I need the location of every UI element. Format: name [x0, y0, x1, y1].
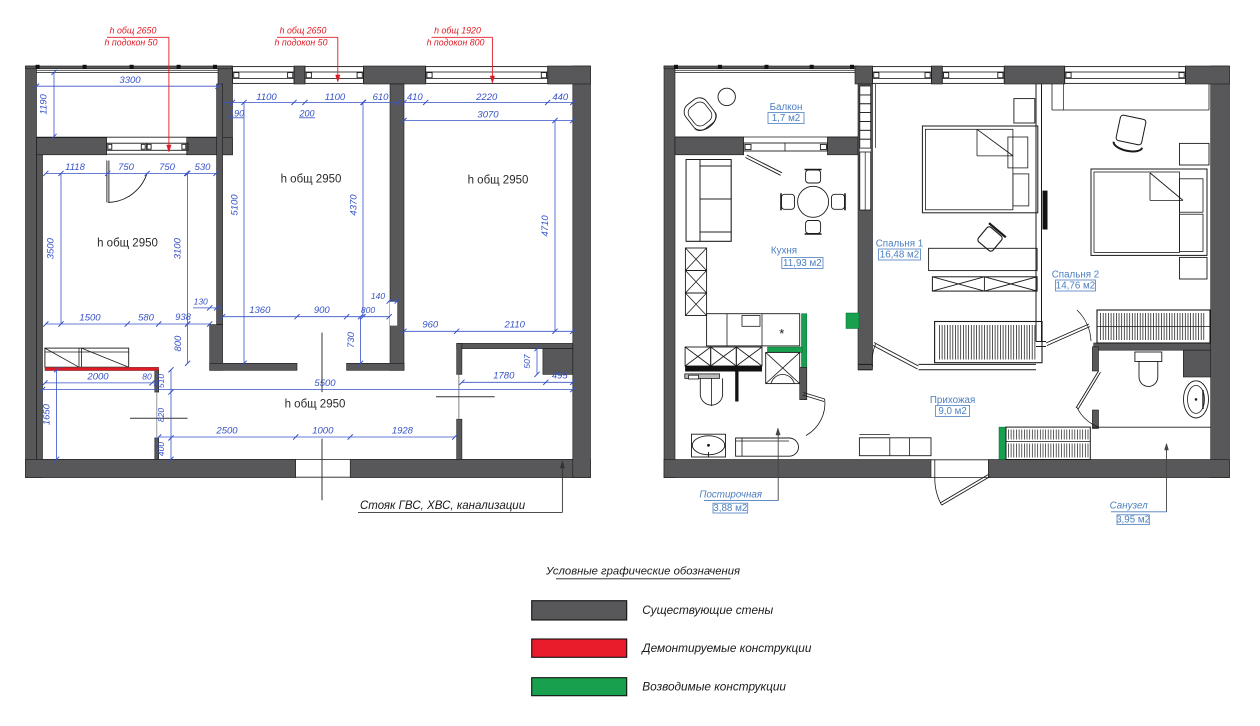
- svg-text:80: 80: [142, 371, 152, 381]
- svg-text:h подокон 50: h подокон 50: [105, 38, 158, 48]
- svg-text:1190: 1190: [39, 93, 50, 114]
- svg-text:Прихожая: Прихожая: [930, 395, 975, 406]
- svg-text:3,95 м2: 3,95 м2: [1116, 514, 1150, 525]
- svg-text:*: *: [779, 326, 784, 341]
- svg-text:1500: 1500: [79, 312, 101, 323]
- svg-text:h общ 2650: h общ 2650: [110, 26, 157, 36]
- svg-text:130: 130: [194, 297, 208, 307]
- svg-text:Кухня: Кухня: [771, 246, 797, 257]
- svg-text:2000: 2000: [86, 371, 109, 382]
- svg-text:h общ 2950: h общ 2950: [281, 174, 342, 186]
- svg-text:Постирочная: Постирочная: [699, 490, 762, 501]
- svg-text:510: 510: [156, 374, 166, 388]
- svg-text:h общ 1920: h общ 1920: [434, 26, 481, 36]
- svg-text:Существующие стены: Существующие стены: [642, 603, 773, 617]
- svg-text:4370: 4370: [349, 194, 360, 216]
- svg-text:Демонтируемые конструкции: Демонтируемые конструкции: [640, 641, 812, 655]
- svg-text:9,0 м2: 9,0 м2: [938, 406, 967, 417]
- svg-text:400: 400: [156, 442, 166, 456]
- svg-text:3100: 3100: [173, 237, 184, 259]
- svg-text:3300: 3300: [119, 75, 141, 86]
- svg-text:530: 530: [195, 162, 212, 173]
- svg-text:Стояк ГВС, ХВС, канализации: Стояк ГВС, ХВС, канализации: [360, 500, 526, 512]
- svg-text:5500: 5500: [314, 378, 336, 389]
- svg-text:140: 140: [371, 291, 385, 301]
- svg-text:410: 410: [407, 92, 424, 103]
- svg-text:800: 800: [361, 305, 375, 315]
- svg-text:1118: 1118: [65, 162, 85, 173]
- svg-text:14,76 м2: 14,76 м2: [1056, 281, 1095, 292]
- svg-text:1100: 1100: [256, 92, 277, 103]
- svg-text:Балкон: Балкон: [770, 102, 803, 113]
- svg-text:4710: 4710: [540, 215, 551, 237]
- svg-text:h общ 2650: h общ 2650: [280, 26, 327, 36]
- svg-text:1000: 1000: [312, 425, 334, 436]
- svg-text:730: 730: [346, 331, 357, 348]
- svg-text:2500: 2500: [215, 425, 238, 436]
- svg-text:495: 495: [552, 371, 569, 382]
- svg-text:800: 800: [173, 335, 184, 352]
- svg-text:2220: 2220: [475, 92, 498, 103]
- svg-text:750: 750: [118, 162, 135, 173]
- svg-text:938: 938: [175, 312, 192, 323]
- svg-text:960: 960: [422, 320, 439, 331]
- svg-text:610: 610: [373, 92, 390, 103]
- svg-text:5100: 5100: [230, 194, 241, 216]
- svg-text:Спальня 1: Спальня 1: [876, 239, 924, 250]
- svg-text:440: 440: [552, 92, 569, 103]
- svg-text:h общ 2950: h общ 2950: [285, 399, 346, 411]
- svg-text:h общ 2950: h общ 2950: [468, 175, 529, 187]
- svg-text:750: 750: [159, 162, 176, 173]
- svg-text:h подокон 50: h подокон 50: [275, 38, 328, 48]
- svg-text:820: 820: [156, 408, 166, 422]
- svg-text:Возводимые конструкции: Возводимые конструкции: [642, 680, 786, 694]
- svg-text:1780: 1780: [493, 371, 515, 382]
- svg-text:1360: 1360: [249, 305, 271, 316]
- svg-text:16,48 м2: 16,48 м2: [880, 250, 919, 261]
- svg-text:1928: 1928: [392, 425, 414, 436]
- svg-text:1650: 1650: [42, 403, 53, 425]
- svg-text:Санузел: Санузел: [1110, 501, 1148, 512]
- svg-text:2110: 2110: [503, 320, 525, 331]
- svg-text:3,88 м2: 3,88 м2: [713, 503, 747, 514]
- svg-text:580: 580: [138, 312, 155, 323]
- svg-text:900: 900: [314, 305, 331, 316]
- svg-text:Условные графические обозначен: Условные графические обозначения: [545, 566, 740, 578]
- svg-text:h общ 2950: h общ 2950: [97, 238, 158, 250]
- svg-text:3500: 3500: [46, 237, 57, 259]
- svg-text:507: 507: [522, 354, 532, 368]
- svg-text:Спальня 2: Спальня 2: [1052, 270, 1100, 281]
- svg-text:h подокон 800: h подокон 800: [427, 38, 485, 48]
- svg-text:3070: 3070: [477, 110, 499, 121]
- svg-text:1,7 м2: 1,7 м2: [772, 113, 801, 124]
- svg-text:1100: 1100: [325, 92, 346, 103]
- svg-text:200: 200: [298, 108, 314, 118]
- svg-text:11,93 м2: 11,93 м2: [783, 258, 822, 269]
- svg-text:190: 190: [229, 108, 244, 118]
